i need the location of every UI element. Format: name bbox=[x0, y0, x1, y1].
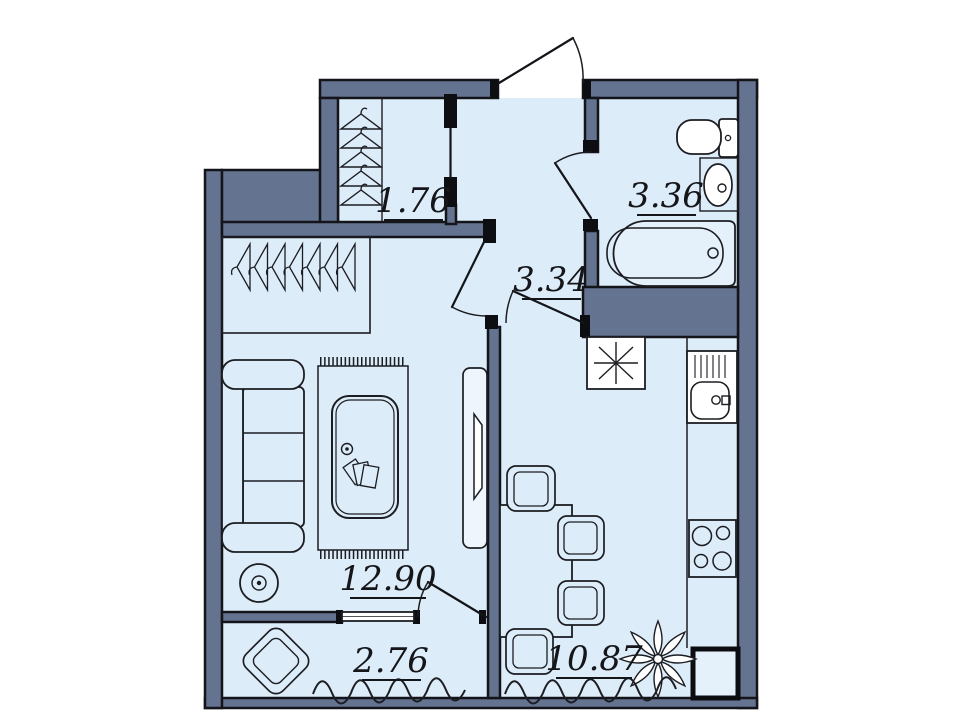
bathroom-door-jamb-top bbox=[583, 140, 598, 152]
entry-door-swing bbox=[573, 38, 583, 83]
kitchen-opening-jamb bbox=[580, 315, 590, 337]
coffee-table bbox=[332, 396, 398, 518]
bathtub bbox=[607, 221, 735, 286]
toilet bbox=[677, 119, 738, 157]
vent-asterisk-icon bbox=[594, 342, 638, 384]
area-label-kitchen: 10.87 bbox=[545, 639, 643, 679]
entry-jamb-left bbox=[490, 80, 498, 98]
floor-plan-svg: 1.76 3.34 3.36 12.90 2.76 10.87 bbox=[0, 0, 960, 710]
tv-screen bbox=[474, 414, 482, 499]
entry-threshold bbox=[498, 80, 583, 98]
entry-jamb-right bbox=[583, 80, 591, 98]
living-door-jamb-top bbox=[483, 219, 496, 243]
area-label-balcony: 2.76 bbox=[352, 641, 429, 681]
outer-wall-bottom bbox=[205, 698, 757, 708]
outer-wall-top-right bbox=[583, 80, 757, 98]
chair-top bbox=[507, 466, 555, 511]
corner-shaft-box bbox=[693, 649, 738, 698]
wardrobe-jamb-top bbox=[444, 94, 457, 128]
floor-plan: 1.76 3.34 3.36 12.90 2.76 10.87 bbox=[0, 0, 960, 710]
bathroom-door-jamb-bottom bbox=[583, 219, 598, 231]
balcony-top-wall bbox=[222, 612, 342, 622]
outer-wall-right bbox=[738, 80, 757, 708]
living-door-jamb-bottom bbox=[485, 315, 498, 329]
outer-wall-top-left bbox=[320, 80, 498, 98]
living-kitchen-wall bbox=[488, 327, 500, 698]
area-label-hallway: 3.34 bbox=[513, 260, 589, 300]
ventilation-shaft bbox=[587, 337, 645, 389]
stove bbox=[689, 520, 736, 577]
chair-right-1 bbox=[558, 516, 604, 560]
area-label-living: 12.90 bbox=[339, 559, 436, 599]
chair-right-2 bbox=[558, 581, 604, 625]
tv-stand bbox=[463, 368, 487, 548]
wardrobe-left-wall bbox=[320, 98, 338, 223]
outer-wall-left bbox=[205, 170, 222, 708]
area-label-bathroom: 3.36 bbox=[628, 176, 704, 216]
bathroom-kitchen-wall-block bbox=[583, 287, 738, 337]
area-label-wardrobe: 1.76 bbox=[375, 181, 451, 221]
sofa bbox=[222, 360, 304, 552]
entry-door bbox=[499, 38, 583, 83]
kitchen-sink bbox=[687, 351, 737, 423]
balcony-window bbox=[342, 612, 414, 621]
